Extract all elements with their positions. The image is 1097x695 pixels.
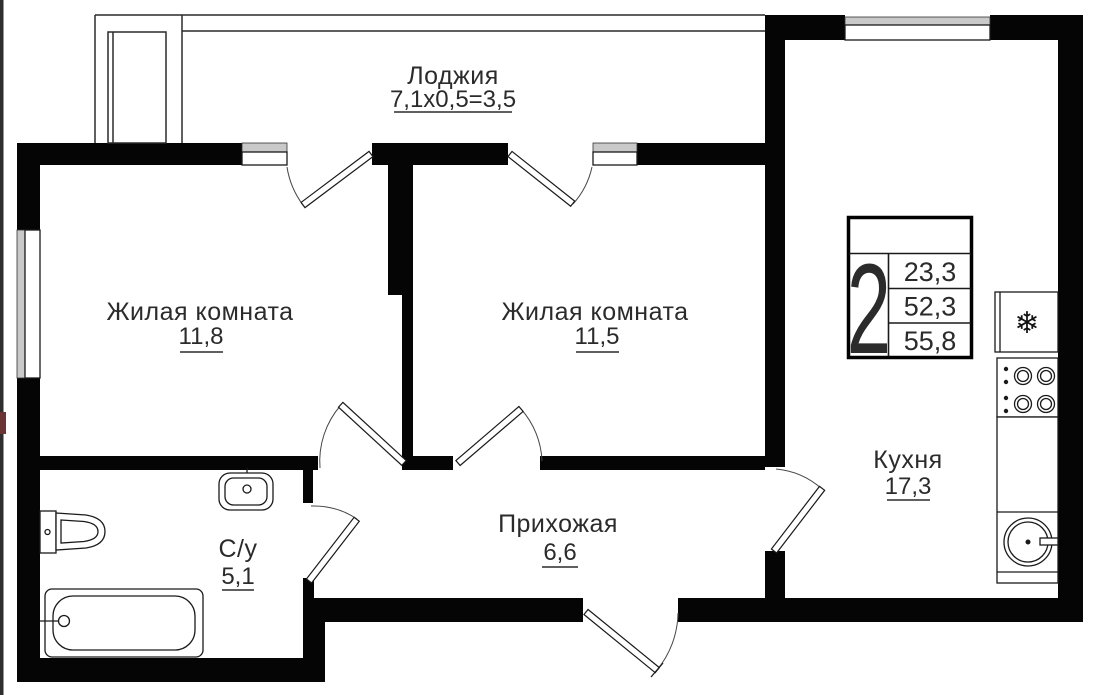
washbasin-drain <box>243 485 251 493</box>
window-living2 <box>593 143 637 165</box>
door-living1 <box>320 402 406 468</box>
washbasin-icon <box>219 468 273 510</box>
room-label-living1: Жилая комната 11,8 <box>106 298 293 352</box>
room-dims: 7,1х0,5=3,5 <box>390 86 516 113</box>
room-area: 11,8 <box>179 323 224 350</box>
wall-segment <box>765 15 845 40</box>
sink-tap <box>1040 538 1058 545</box>
room-label-living2: Жилая комната 11,5 <box>501 298 688 352</box>
door-bathroom <box>306 506 359 583</box>
page-edge-line <box>0 0 4 695</box>
toilet-button <box>45 530 50 535</box>
stove-knob <box>1004 380 1008 384</box>
wall-segment <box>765 551 785 598</box>
legend-living-area: 23,3 <box>904 257 957 287</box>
wall-segment <box>17 143 242 165</box>
toilet-icon <box>40 511 105 553</box>
wall-segment <box>402 456 453 470</box>
stove-icon <box>997 358 1058 417</box>
room-name: Жилая комната <box>106 298 293 326</box>
fridge-icon: ❄ <box>995 292 1058 352</box>
window-sill <box>845 17 990 25</box>
stove-knob <box>1004 367 1008 371</box>
wall-segment <box>765 15 785 467</box>
room-label-loggia: Лоджия 7,1х0,5=3,5 <box>390 62 516 113</box>
burner-inner <box>1041 371 1052 382</box>
window-sill <box>242 143 287 152</box>
page-edge-mark <box>0 412 6 434</box>
wall-segment <box>313 598 583 622</box>
room-area: 17,3 <box>885 473 932 500</box>
stove-knob <box>1004 409 1008 413</box>
door-swing-arc <box>320 405 341 468</box>
room-name: С/у <box>219 535 258 563</box>
window-frame <box>845 25 990 40</box>
bathtub-icon <box>40 589 203 657</box>
door-kitchen <box>771 469 824 553</box>
room-name: Кухня <box>873 446 942 474</box>
window-frame <box>593 152 637 165</box>
window-frame <box>25 230 40 378</box>
door-leaf <box>301 151 373 207</box>
window-sill <box>593 143 637 152</box>
snowflake-icon: ❄ <box>1014 306 1039 341</box>
door-leaf <box>584 609 659 672</box>
door-leaf <box>306 517 359 583</box>
loggia-partition <box>108 32 166 143</box>
window-left-wall <box>17 230 40 378</box>
bathtub-drain <box>59 616 70 627</box>
door-leaf <box>338 402 406 465</box>
floor-plan-drawing: ❄ <box>0 0 1097 695</box>
wall-segment <box>372 143 508 165</box>
burner-inner <box>1018 371 1029 382</box>
door-loggia-living1 <box>287 151 373 207</box>
wall-segment <box>540 456 765 470</box>
room-labels: Лоджия 7,1х0,5=3,5 Жилая комната 11,8 Жи… <box>106 62 942 590</box>
legend-total-area: 55,8 <box>904 326 957 356</box>
room-name: Прихожая <box>498 510 618 538</box>
door-leaf <box>456 407 523 466</box>
door-swing-arc <box>521 409 542 461</box>
window-kitchen <box>845 17 990 40</box>
door-entrance <box>584 609 678 677</box>
door-swing-arc <box>573 167 592 204</box>
wall-segment <box>402 295 413 456</box>
legend-rooms-count: 2 <box>847 238 891 381</box>
legend-apartment-area: 52,3 <box>904 292 957 322</box>
door-swing-arc <box>776 469 822 489</box>
floor-plan: ❄ <box>0 0 1097 695</box>
burner-inner <box>1041 399 1052 410</box>
toilet-bowl-inner <box>61 520 98 543</box>
room-label-kitchen: Кухня 17,3 <box>873 446 942 500</box>
legend-table: 2 23,3 52,3 55,8 <box>847 218 972 381</box>
wall-segment <box>678 598 1083 622</box>
wall-segment <box>637 143 765 165</box>
stove-knob <box>1004 396 1008 400</box>
wall-segment <box>388 165 413 295</box>
room-area: 11,5 <box>575 323 620 350</box>
sink-drain <box>1026 540 1031 545</box>
door-swing-arc <box>287 167 303 205</box>
door-swing-arc <box>311 506 357 519</box>
wall-segment <box>303 470 313 503</box>
door-leaf <box>771 486 824 553</box>
door-leaf <box>508 151 575 206</box>
room-area: 6,6 <box>543 539 576 566</box>
door-swing-arc <box>657 613 678 670</box>
door-loggia-living2 <box>508 151 592 206</box>
wall-segment <box>40 456 318 470</box>
window-living1 <box>242 143 287 165</box>
window-sill <box>17 230 25 378</box>
door-living2 <box>456 407 542 466</box>
wall-segment <box>17 658 325 682</box>
kitchen-fixtures: ❄ <box>995 292 1058 583</box>
window-frame <box>242 152 287 165</box>
room-area: 5,1 <box>221 563 254 590</box>
wall-segment <box>1058 15 1083 622</box>
room-label-hallway: Прихожая 6,6 <box>498 510 618 567</box>
room-label-bathroom: С/у 5,1 <box>219 535 258 590</box>
wall-segment <box>17 378 40 682</box>
room-name: Жилая комната <box>501 298 688 326</box>
burner-inner <box>1018 399 1029 410</box>
bathtub-inner <box>53 596 195 650</box>
counter-and-sink <box>997 417 1058 583</box>
